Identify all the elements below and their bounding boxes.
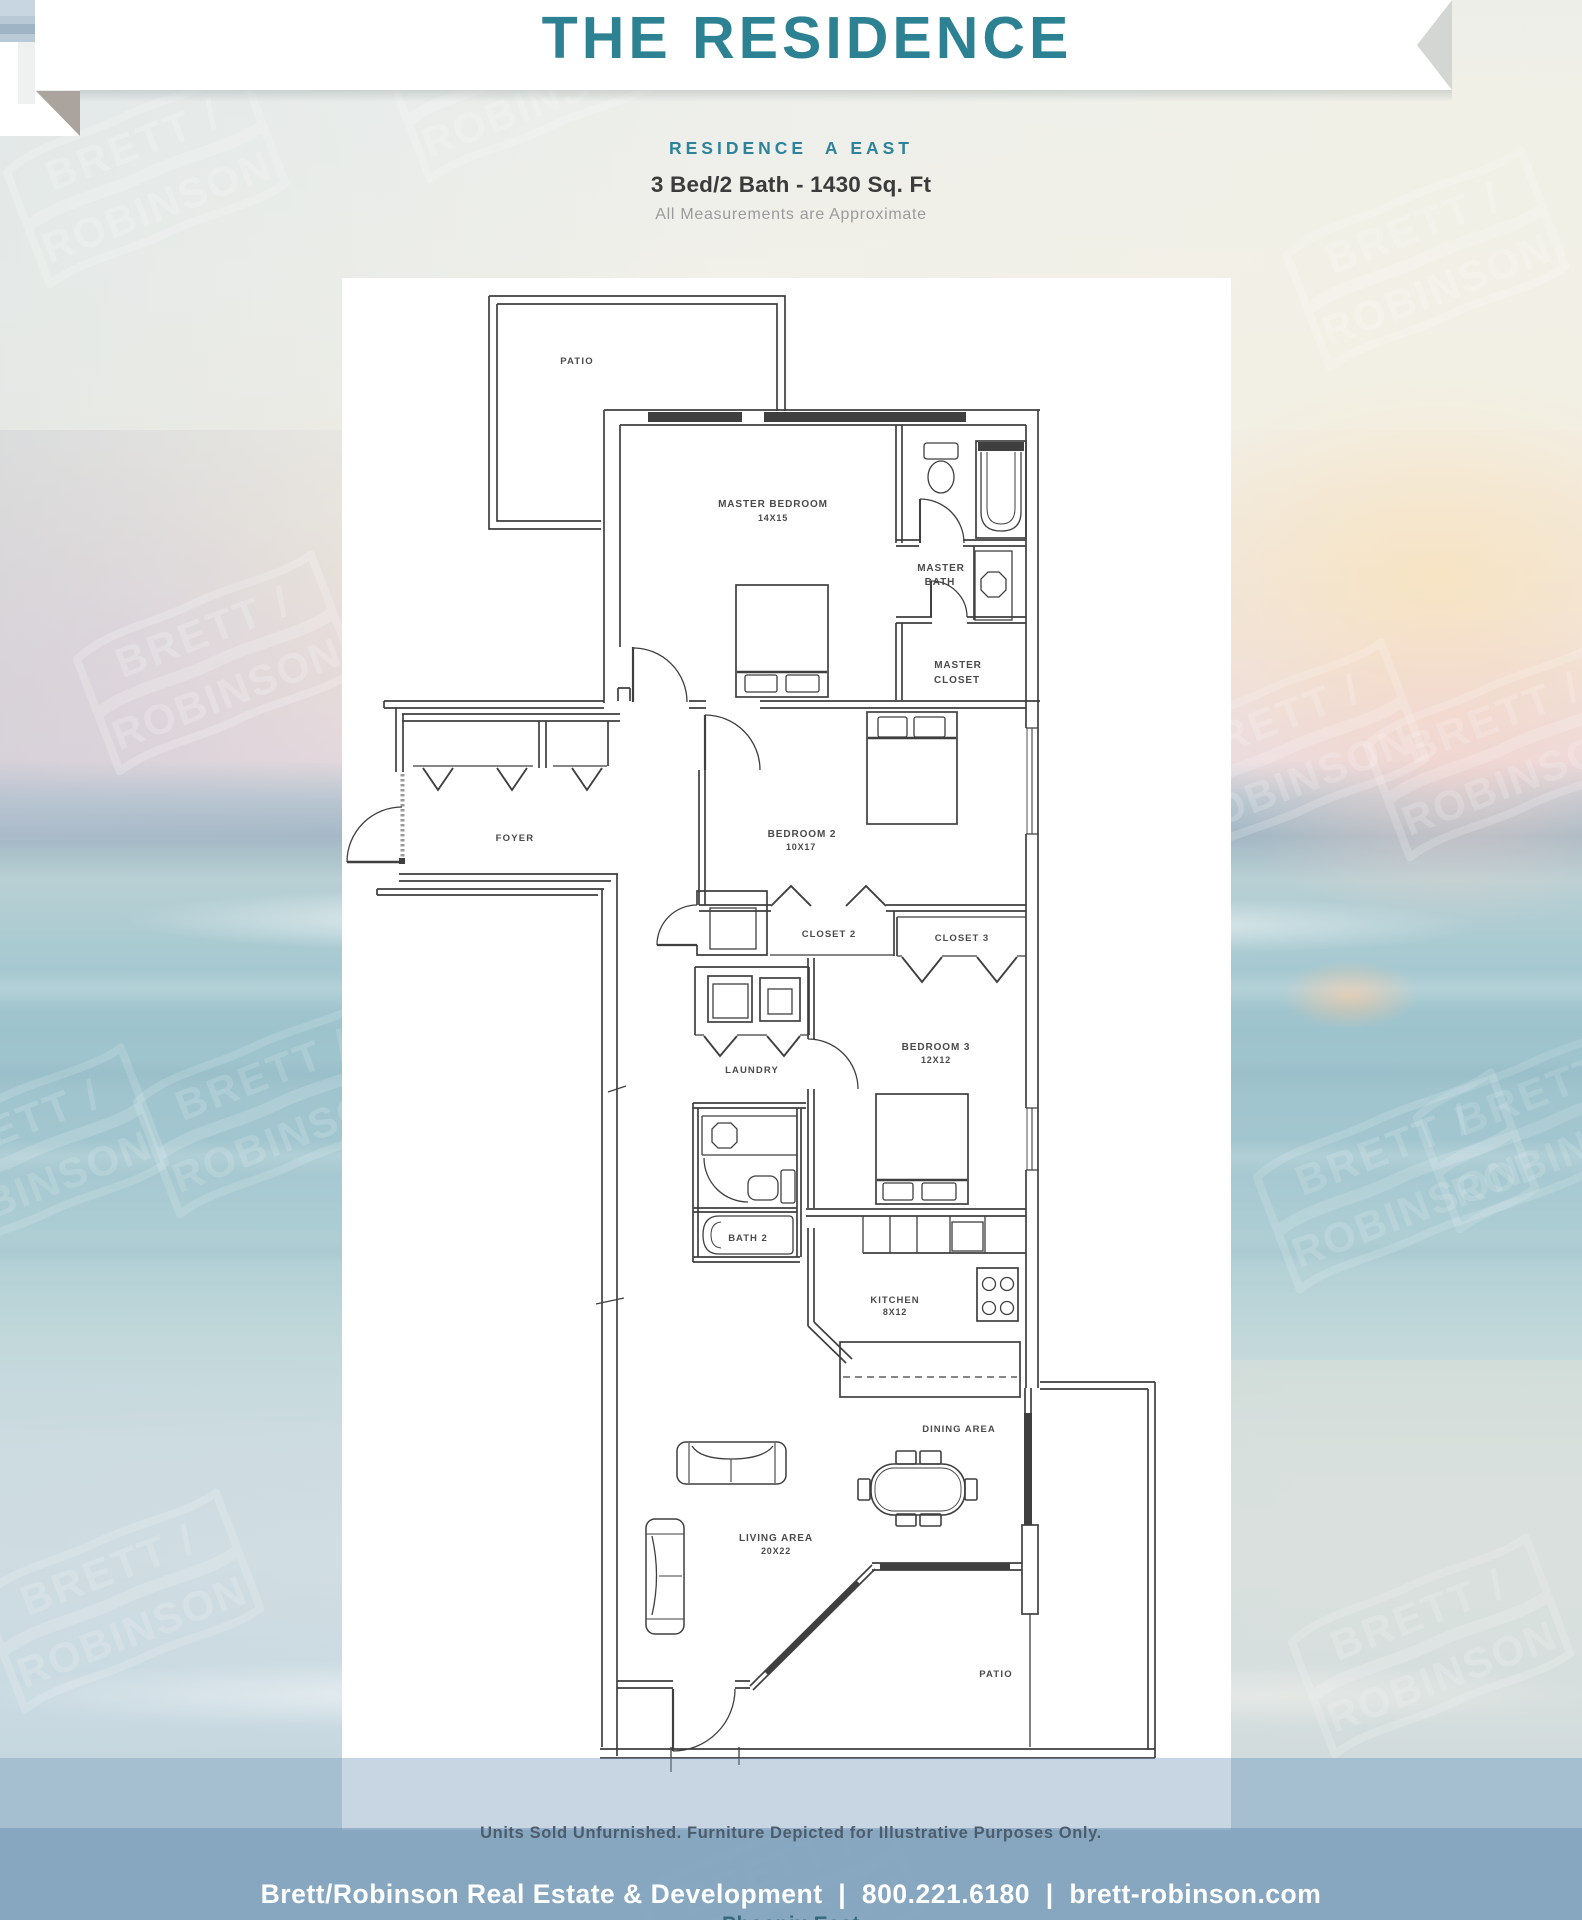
svg-text:MASTER: MASTER [917,563,965,574]
svg-text:BEDROOM 2: BEDROOM 2 [768,829,837,840]
svg-text:12X12: 12X12 [921,1055,951,1065]
svg-text:PATIO: PATIO [979,1669,1013,1680]
svg-text:CLOSET 2: CLOSET 2 [802,929,856,940]
svg-text:LAUNDRY: LAUNDRY [725,1065,779,1076]
svg-text:CLOSET: CLOSET [934,675,980,686]
svg-text:MASTER BEDROOM: MASTER BEDROOM [718,499,828,510]
svg-text:10X17: 10X17 [786,842,816,852]
svg-text:KITCHEN: KITCHEN [870,1295,919,1306]
svg-text:20X22: 20X22 [761,1546,791,1556]
svg-text:8X12: 8X12 [883,1307,907,1317]
svg-text:CLOSET 3: CLOSET 3 [935,933,989,944]
svg-text:LIVING AREA: LIVING AREA [739,1533,813,1544]
svg-text:BATH 2: BATH 2 [728,1233,768,1244]
svg-text:MASTER: MASTER [934,660,982,671]
svg-text:DINING AREA: DINING AREA [922,1424,995,1435]
svg-text:BEDROOM 3: BEDROOM 3 [902,1042,971,1053]
svg-text:PATIO: PATIO [560,356,594,367]
svg-text:14X15: 14X15 [758,513,788,523]
svg-text:FOYER: FOYER [496,833,535,844]
